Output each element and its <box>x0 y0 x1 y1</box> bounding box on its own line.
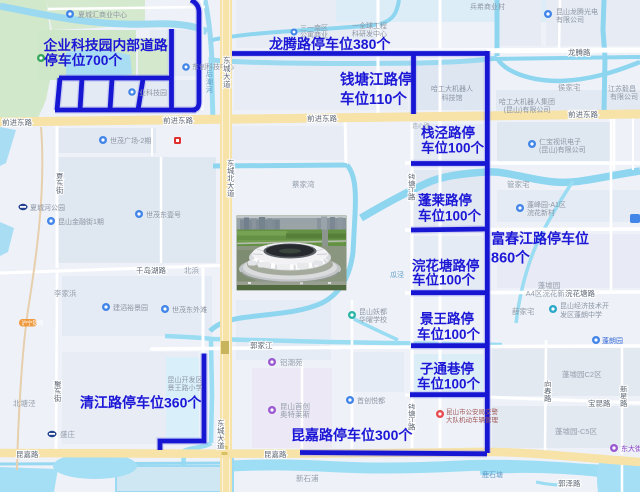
svg-text:业科技园: 业科技园 <box>139 88 167 97</box>
svg-text:景王路停: 景王路停 <box>420 311 474 327</box>
svg-text:李家浜: 李家浜 <box>54 288 77 298</box>
svg-text:车位100个: 车位100个 <box>417 376 481 392</box>
svg-text:科技馆: 科技馆 <box>442 93 463 102</box>
svg-text:蓬朗园: 蓬朗园 <box>602 336 623 345</box>
svg-text:车位100个: 车位100个 <box>421 140 485 156</box>
svg-text:世茂东外滩: 世茂东外滩 <box>172 305 207 314</box>
svg-text:蓬峰园-A1区: 蓬峰园-A1区 <box>527 200 566 209</box>
svg-text:(昆山)有限公司: (昆山)有限公司 <box>504 105 551 114</box>
svg-text:哈工大机器人集团: 哈工大机器人集团 <box>499 97 555 106</box>
svg-text:管家宅: 管家宅 <box>507 179 530 189</box>
svg-text:侯家宅: 侯家宅 <box>558 82 581 92</box>
svg-text:前进东路: 前进东路 <box>163 115 193 125</box>
svg-text:夏城汇商业中心: 夏城汇商业中心 <box>78 10 127 19</box>
svg-text:郭泽路: 郭泽路 <box>558 478 581 488</box>
svg-text:昆山金融街1期: 昆山金融街1期 <box>58 217 104 226</box>
svg-text:千岛湖路: 千岛湖路 <box>136 265 166 275</box>
svg-text:宝昆路: 宝昆路 <box>588 398 611 408</box>
svg-text:车位110个: 车位110个 <box>340 90 407 108</box>
svg-text:东大街: 东大街 <box>621 444 640 453</box>
svg-text:仁宝视讯电子: 仁宝视讯电子 <box>539 137 581 146</box>
svg-text:浣花新村: 浣花新村 <box>527 208 555 217</box>
svg-text:浣花塘路: 浣花塘路 <box>565 288 595 298</box>
svg-text:大队机动车辆管理: 大队机动车辆管理 <box>446 415 499 424</box>
svg-text:(昆山)有限公司: (昆山)有限公司 <box>539 145 586 154</box>
svg-text:新石浦: 新石浦 <box>296 473 319 483</box>
svg-text:铝潮苑: 铝潮苑 <box>280 357 303 367</box>
svg-text:一全球工程: 一全球工程 <box>352 21 387 30</box>
svg-text:向春路: 向春路 <box>544 379 552 403</box>
svg-text:有限公司: 有限公司 <box>610 92 638 101</box>
svg-text:栈泾路停: 栈泾路停 <box>421 125 475 141</box>
svg-text:新星路: 新星路 <box>620 384 628 408</box>
svg-text:北塘泾: 北塘泾 <box>13 398 36 408</box>
svg-text:东城北大道: 东城北大道 <box>227 158 235 198</box>
svg-text:昆山龙腾光电: 昆山龙腾光电 <box>556 7 598 16</box>
svg-text:景王路小学: 景王路小学 <box>168 383 203 392</box>
svg-text:郭家江: 郭家江 <box>250 340 273 350</box>
svg-text:夏城河公园: 夏城河公园 <box>30 204 65 212</box>
svg-text:企业科技园内部道路: 企业科技园内部道路 <box>43 37 168 53</box>
svg-text:蓬墟园C2区: 蓬墟园C2区 <box>562 369 602 379</box>
svg-text:盛庄: 盛庄 <box>60 429 75 439</box>
svg-text:有限公司: 有限公司 <box>556 15 584 24</box>
svg-text:子通巷停: 子通巷停 <box>420 361 474 377</box>
svg-text:江苏毅昌: 江苏毅昌 <box>608 84 636 93</box>
svg-text:蔡家湾: 蔡家湾 <box>292 179 315 189</box>
svg-text:建滔裕景园: 建滔裕景园 <box>113 303 148 312</box>
svg-text:昆山经济技术开: 昆山经济技术开 <box>560 301 609 310</box>
svg-text:蓬莱路停: 蓬莱路停 <box>418 192 472 208</box>
svg-text:860个: 860个 <box>491 250 530 267</box>
svg-text:奥特莱斯: 奥特莱斯 <box>280 409 310 419</box>
svg-text:东城大道: 东城大道 <box>223 55 231 89</box>
svg-text:沪宁铁路: 沪宁铁路 <box>22 319 45 327</box>
svg-text:哈工大机器人: 哈工大机器人 <box>431 84 473 93</box>
svg-text:夏东街: 夏东街 <box>56 172 64 195</box>
svg-text:龙腾路: 龙腾路 <box>568 47 591 57</box>
svg-text:东城大道: 东城大道 <box>217 418 225 451</box>
svg-text:兵希商业村: 兵希商业村 <box>470 2 505 11</box>
svg-text:昆山市公安局交警: 昆山市公安局交警 <box>446 407 499 416</box>
svg-text:蓬墟园-C5区: 蓬墟园-C5区 <box>555 426 598 436</box>
svg-text:昆山妖都: 昆山妖都 <box>359 307 387 316</box>
svg-text:昆嘉路停车位300个: 昆嘉路停车位300个 <box>291 427 413 443</box>
svg-text:华曜学校: 华曜学校 <box>359 315 387 324</box>
svg-text:前进东路: 前进东路 <box>568 109 598 119</box>
svg-text:世茂东壹号: 世茂东壹号 <box>146 210 181 219</box>
svg-text:昆嘉路: 昆嘉路 <box>16 449 39 459</box>
svg-text:清江路停车位360个: 清江路停车位360个 <box>80 395 202 411</box>
svg-text:车位100个: 车位100个 <box>418 208 482 224</box>
svg-text:后潮河: 后潮河 <box>206 69 213 94</box>
svg-text:三一南区: 三一南区 <box>300 23 328 32</box>
svg-text:富春江路停车位: 富春江路停车位 <box>491 231 589 247</box>
svg-text:鹿石塘: 鹿石塘 <box>482 470 503 479</box>
svg-text:世茂广场-2期: 世茂广场-2期 <box>110 136 151 145</box>
svg-text:钱塘江路: 钱塘江路 <box>408 172 416 202</box>
svg-text:发区蓬朗中学: 发区蓬朗中学 <box>560 310 602 319</box>
svg-text:前进东路: 前进东路 <box>2 117 32 127</box>
svg-text:昆嘉路: 昆嘉路 <box>264 449 287 459</box>
svg-text:首创悦都: 首创悦都 <box>357 396 385 405</box>
svg-text:浣花塘路停: 浣花塘路停 <box>412 258 480 274</box>
svg-text:北浜: 北浜 <box>184 265 199 275</box>
svg-text:龙腾路停车位380个: 龙腾路停车位380个 <box>268 36 391 52</box>
svg-text:车位100个: 车位100个 <box>417 326 481 342</box>
svg-text:车位100个: 车位100个 <box>412 272 476 288</box>
svg-text:薛家宅: 薛家宅 <box>512 306 535 316</box>
svg-text:聚东街: 聚东街 <box>54 380 62 403</box>
svg-text:昆山开发区: 昆山开发区 <box>168 375 203 384</box>
svg-text:钱塘江路停: 钱塘江路停 <box>340 71 413 89</box>
svg-text:前进东路: 前进东路 <box>307 113 337 123</box>
svg-text:瓜泾: 瓜泾 <box>390 271 404 279</box>
svg-text:停车位700个: 停车位700个 <box>44 52 122 68</box>
